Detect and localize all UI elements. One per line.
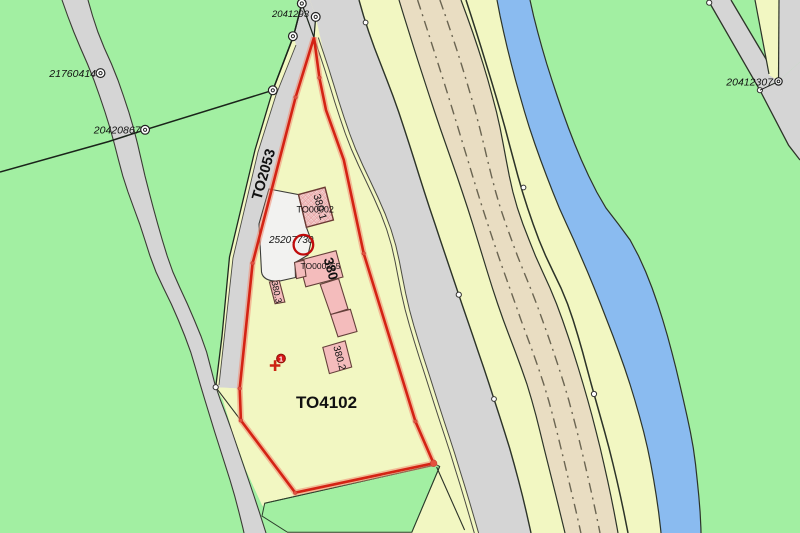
svg-text:21760414: 21760414	[48, 68, 96, 80]
svg-text:TO4102: TO4102	[296, 393, 357, 412]
svg-text:20420867: 20420867	[93, 125, 142, 137]
svg-text:2041293: 2041293	[271, 9, 310, 20]
svg-text:1: 1	[279, 355, 283, 364]
svg-text:20412307: 20412307	[725, 77, 774, 89]
